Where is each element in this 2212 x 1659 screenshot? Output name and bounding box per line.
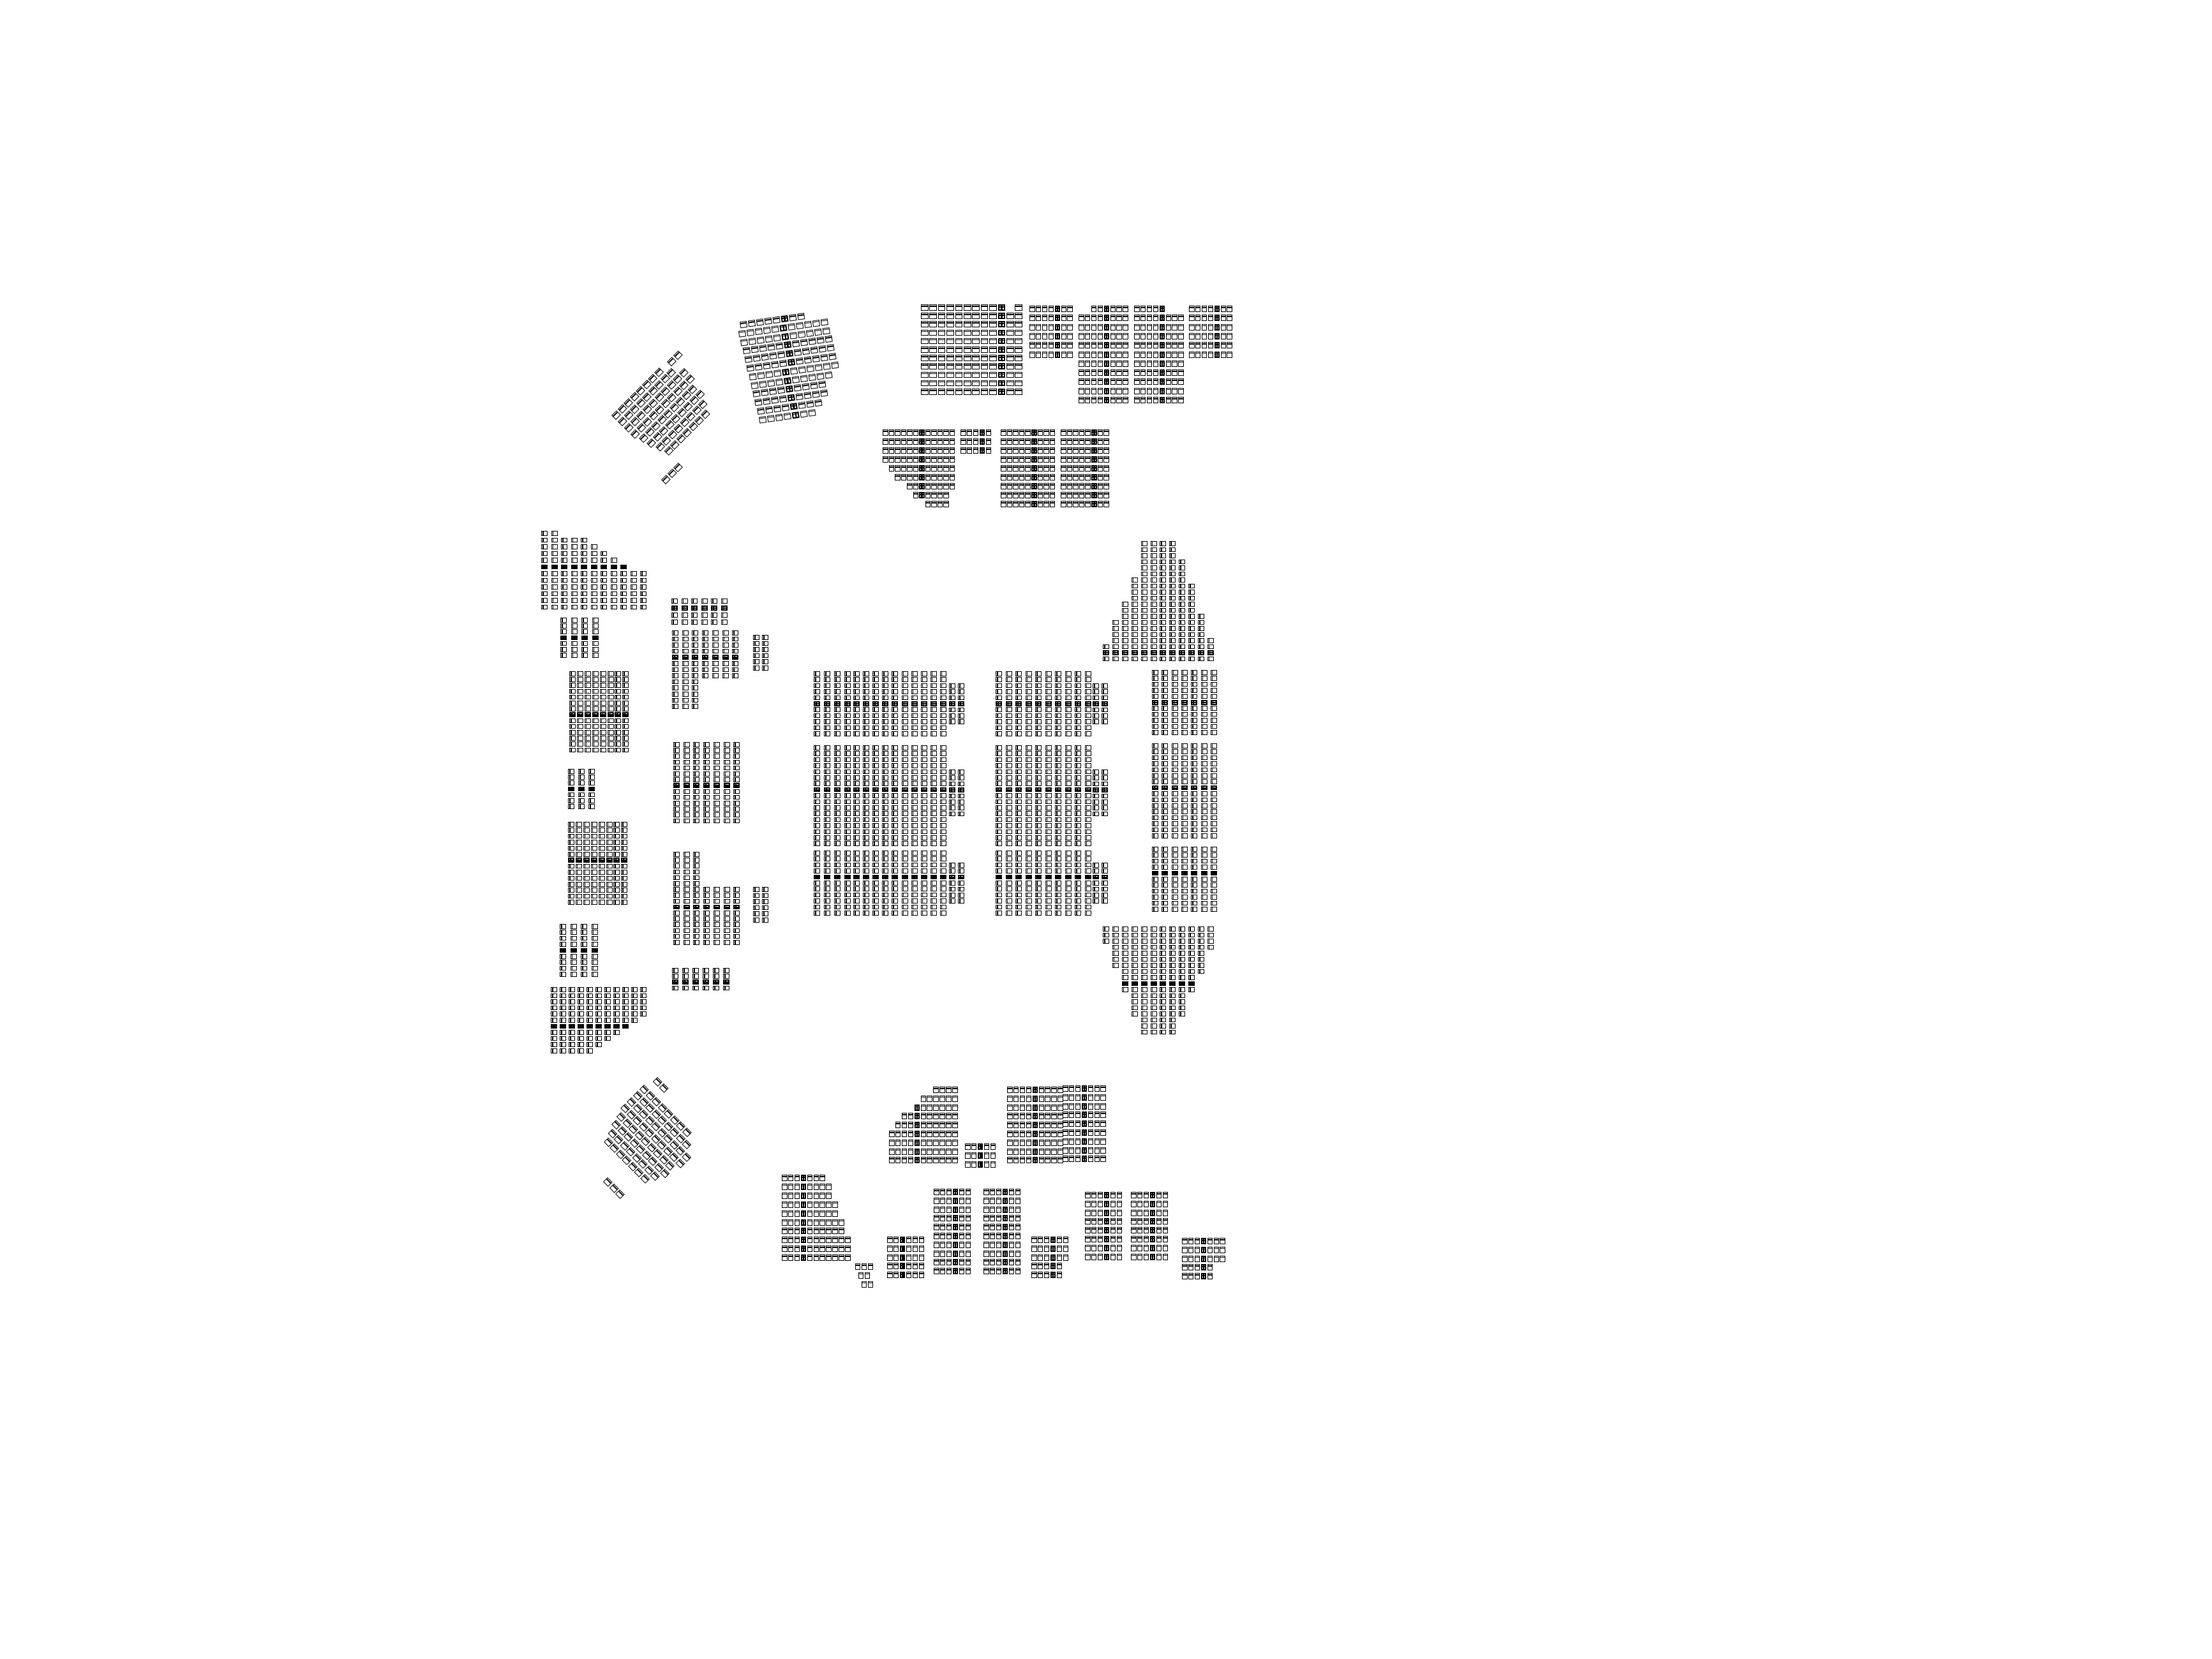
seat[interactable] bbox=[1221, 352, 1227, 358]
seat[interactable] bbox=[824, 886, 830, 891]
seat[interactable] bbox=[762, 635, 768, 640]
seat[interactable] bbox=[714, 789, 720, 794]
seat[interactable] bbox=[958, 683, 964, 688]
seat[interactable] bbox=[1162, 871, 1168, 876]
seat[interactable] bbox=[834, 793, 841, 798]
seat[interactable] bbox=[865, 1272, 871, 1279]
seat[interactable] bbox=[958, 898, 964, 904]
seat[interactable] bbox=[1131, 1210, 1137, 1216]
seat[interactable] bbox=[1116, 315, 1122, 321]
seat[interactable] bbox=[913, 456, 919, 463]
seat[interactable] bbox=[996, 817, 1002, 822]
seat[interactable] bbox=[1169, 584, 1176, 589]
seat[interactable] bbox=[781, 404, 789, 411]
seat[interactable] bbox=[740, 321, 747, 328]
seat[interactable] bbox=[1191, 773, 1197, 778]
seat[interactable] bbox=[1013, 1096, 1019, 1102]
seat[interactable] bbox=[940, 1251, 946, 1257]
seat[interactable] bbox=[795, 1219, 800, 1226]
seat[interactable] bbox=[693, 911, 699, 916]
seat[interactable] bbox=[1035, 817, 1042, 822]
seat[interactable] bbox=[913, 465, 919, 472]
seat[interactable] bbox=[853, 751, 860, 756]
seat[interactable] bbox=[1141, 584, 1147, 589]
seat[interactable] bbox=[863, 823, 869, 828]
seat[interactable] bbox=[1162, 682, 1168, 687]
seat[interactable] bbox=[541, 578, 548, 583]
seat[interactable] bbox=[1042, 342, 1048, 348]
seat[interactable] bbox=[844, 835, 851, 840]
seat[interactable] bbox=[1051, 1122, 1057, 1128]
seat[interactable] bbox=[1100, 1094, 1106, 1101]
seat[interactable] bbox=[1026, 719, 1032, 724]
seat[interactable] bbox=[1169, 614, 1176, 619]
seat[interactable] bbox=[1153, 361, 1159, 367]
seat[interactable] bbox=[1085, 324, 1091, 331]
seat[interactable] bbox=[753, 918, 759, 923]
seat[interactable] bbox=[990, 1189, 996, 1195]
seat[interactable] bbox=[1098, 1245, 1103, 1251]
seat[interactable] bbox=[1007, 1149, 1013, 1155]
seat[interactable] bbox=[1067, 342, 1073, 348]
seat[interactable] bbox=[1061, 492, 1066, 498]
seat[interactable] bbox=[577, 741, 583, 747]
seat[interactable] bbox=[1162, 859, 1168, 864]
seat[interactable] bbox=[622, 695, 629, 700]
seat[interactable] bbox=[1181, 718, 1188, 723]
seat[interactable] bbox=[1198, 650, 1204, 655]
seat[interactable] bbox=[591, 852, 597, 857]
seat[interactable] bbox=[1085, 1236, 1091, 1242]
seat[interactable] bbox=[819, 1246, 825, 1252]
seat[interactable] bbox=[608, 689, 614, 694]
seat[interactable] bbox=[1117, 1192, 1123, 1198]
seat[interactable] bbox=[1162, 755, 1168, 761]
seat[interactable] bbox=[1006, 330, 1014, 336]
seat[interactable] bbox=[576, 858, 582, 863]
seat[interactable] bbox=[1179, 602, 1185, 607]
seat[interactable] bbox=[810, 382, 818, 389]
seat[interactable] bbox=[732, 655, 738, 660]
seat[interactable] bbox=[902, 1140, 908, 1146]
seat[interactable] bbox=[1181, 798, 1188, 803]
seat[interactable] bbox=[925, 447, 931, 454]
seat[interactable] bbox=[958, 887, 964, 892]
seat[interactable] bbox=[1137, 1245, 1143, 1251]
seat[interactable] bbox=[819, 1184, 825, 1190]
seat[interactable] bbox=[767, 344, 775, 351]
seat[interactable] bbox=[1134, 342, 1140, 348]
seat[interactable] bbox=[981, 389, 989, 395]
seat[interactable] bbox=[1073, 492, 1079, 498]
seat[interactable] bbox=[1163, 1245, 1169, 1251]
seat[interactable] bbox=[1104, 388, 1110, 394]
seat[interactable] bbox=[919, 1254, 925, 1261]
seat[interactable] bbox=[569, 1024, 575, 1029]
seat[interactable] bbox=[1169, 981, 1176, 986]
seat[interactable] bbox=[1214, 306, 1220, 312]
seat[interactable] bbox=[1132, 650, 1138, 655]
seat[interactable] bbox=[1141, 999, 1147, 1004]
seat[interactable] bbox=[940, 800, 946, 805]
seat[interactable] bbox=[863, 811, 869, 816]
seat[interactable] bbox=[958, 775, 964, 780]
seat[interactable] bbox=[1201, 768, 1207, 773]
seat[interactable] bbox=[1151, 572, 1157, 577]
seat[interactable] bbox=[1013, 1113, 1019, 1119]
seat[interactable] bbox=[882, 851, 888, 856]
seat[interactable] bbox=[1029, 306, 1035, 312]
seat[interactable] bbox=[592, 966, 598, 971]
seat[interactable] bbox=[853, 793, 860, 798]
seat[interactable] bbox=[1162, 712, 1168, 717]
seat[interactable] bbox=[724, 812, 730, 817]
seat[interactable] bbox=[946, 1122, 952, 1128]
seat[interactable] bbox=[621, 840, 627, 845]
seat[interactable] bbox=[1134, 397, 1140, 403]
seat[interactable] bbox=[621, 894, 627, 899]
seat[interactable] bbox=[1179, 926, 1185, 932]
seat[interactable] bbox=[1181, 743, 1188, 748]
seat[interactable] bbox=[949, 898, 955, 904]
seat[interactable] bbox=[684, 899, 690, 904]
seat[interactable] bbox=[1088, 1156, 1094, 1162]
seat[interactable] bbox=[921, 731, 927, 736]
seat[interactable] bbox=[1095, 1094, 1100, 1101]
seat[interactable] bbox=[921, 1122, 927, 1128]
seat[interactable] bbox=[1181, 901, 1188, 906]
seat[interactable] bbox=[1015, 863, 1022, 868]
seat[interactable] bbox=[1172, 342, 1177, 348]
seat[interactable] bbox=[925, 438, 931, 445]
seat[interactable] bbox=[671, 606, 678, 611]
seat[interactable] bbox=[1103, 447, 1109, 454]
seat[interactable] bbox=[1075, 851, 1081, 856]
seat[interactable] bbox=[560, 1024, 566, 1029]
seat[interactable] bbox=[1055, 800, 1061, 805]
seat[interactable] bbox=[693, 922, 699, 927]
seat[interactable] bbox=[1067, 474, 1073, 480]
seat[interactable] bbox=[1151, 632, 1157, 637]
seat[interactable] bbox=[1160, 626, 1166, 631]
seat[interactable] bbox=[592, 972, 598, 977]
seat[interactable] bbox=[1026, 751, 1032, 756]
seat[interactable] bbox=[812, 320, 820, 327]
seat[interactable] bbox=[934, 1242, 939, 1248]
seat[interactable] bbox=[902, 800, 908, 805]
seat[interactable] bbox=[606, 894, 613, 899]
seat[interactable] bbox=[892, 787, 898, 792]
seat[interactable] bbox=[1075, 725, 1081, 731]
seat[interactable] bbox=[659, 1083, 668, 1093]
seat[interactable] bbox=[1162, 700, 1168, 705]
seat[interactable] bbox=[703, 807, 710, 812]
seat[interactable] bbox=[631, 591, 637, 597]
seat[interactable] bbox=[921, 875, 927, 880]
seat[interactable] bbox=[583, 900, 590, 905]
seat[interactable] bbox=[1095, 1112, 1100, 1118]
seat[interactable] bbox=[907, 483, 913, 489]
seat[interactable] bbox=[569, 987, 575, 992]
seat[interactable] bbox=[684, 858, 690, 863]
seat[interactable] bbox=[872, 829, 879, 835]
seat[interactable] bbox=[1043, 447, 1049, 454]
seat[interactable] bbox=[1091, 501, 1097, 507]
seat[interactable] bbox=[930, 696, 937, 701]
seat[interactable] bbox=[1172, 895, 1178, 900]
seat[interactable] bbox=[853, 781, 860, 786]
seat[interactable] bbox=[724, 795, 730, 800]
seat[interactable] bbox=[1122, 602, 1128, 607]
seat[interactable] bbox=[863, 751, 869, 756]
seat[interactable] bbox=[1166, 388, 1172, 394]
seat[interactable] bbox=[1065, 751, 1072, 756]
seat[interactable] bbox=[591, 840, 597, 845]
seat[interactable] bbox=[1181, 773, 1188, 778]
seat[interactable] bbox=[692, 649, 698, 654]
seat[interactable] bbox=[1102, 683, 1108, 688]
seat[interactable] bbox=[1110, 324, 1116, 331]
seat[interactable] bbox=[853, 805, 860, 810]
seat[interactable] bbox=[814, 893, 820, 898]
seat[interactable] bbox=[571, 558, 578, 563]
seat[interactable] bbox=[595, 1006, 602, 1011]
seat[interactable] bbox=[1112, 620, 1119, 625]
seat[interactable] bbox=[592, 724, 599, 729]
seat[interactable] bbox=[587, 1042, 593, 1047]
seat[interactable] bbox=[853, 898, 860, 904]
seat[interactable] bbox=[1065, 707, 1072, 712]
seat[interactable] bbox=[1015, 905, 1022, 910]
seat[interactable] bbox=[1065, 731, 1072, 736]
seat[interactable] bbox=[949, 881, 955, 886]
seat[interactable] bbox=[1006, 800, 1012, 805]
seat[interactable] bbox=[583, 846, 590, 851]
seat[interactable] bbox=[1198, 939, 1204, 944]
seat[interactable] bbox=[930, 763, 937, 768]
seat[interactable] bbox=[571, 924, 577, 929]
seat[interactable] bbox=[1067, 306, 1073, 312]
seat[interactable] bbox=[940, 829, 946, 835]
seat[interactable] bbox=[583, 858, 590, 863]
seat[interactable] bbox=[1152, 743, 1158, 748]
seat[interactable] bbox=[872, 868, 879, 874]
seat[interactable] bbox=[834, 893, 841, 898]
seat[interactable] bbox=[1026, 1140, 1032, 1146]
seat[interactable] bbox=[1169, 620, 1176, 625]
seat[interactable] bbox=[568, 888, 574, 893]
seat[interactable] bbox=[872, 683, 879, 688]
seat[interactable] bbox=[1038, 1272, 1043, 1278]
seat[interactable] bbox=[1075, 719, 1081, 724]
seat[interactable] bbox=[1207, 926, 1214, 932]
seat[interactable] bbox=[620, 598, 627, 603]
seat[interactable] bbox=[622, 993, 629, 999]
seat[interactable] bbox=[959, 1198, 965, 1204]
seat[interactable] bbox=[591, 822, 597, 827]
seat[interactable] bbox=[1162, 724, 1168, 729]
seat[interactable] bbox=[1085, 397, 1091, 403]
seat[interactable] bbox=[1214, 342, 1220, 348]
seat[interactable] bbox=[911, 893, 918, 898]
seat[interactable] bbox=[611, 578, 617, 583]
seat[interactable] bbox=[981, 380, 989, 387]
seat[interactable] bbox=[1051, 1140, 1057, 1146]
seat[interactable] bbox=[1181, 749, 1188, 754]
seat[interactable] bbox=[990, 1161, 996, 1168]
seat[interactable] bbox=[892, 823, 898, 828]
seat[interactable] bbox=[765, 335, 773, 342]
seat[interactable] bbox=[882, 775, 888, 780]
seat[interactable] bbox=[1006, 355, 1014, 361]
seat[interactable] bbox=[996, 731, 1002, 736]
seat[interactable] bbox=[541, 558, 548, 563]
seat[interactable] bbox=[1162, 907, 1168, 912]
seat[interactable] bbox=[938, 346, 946, 353]
seat[interactable] bbox=[762, 641, 768, 646]
seat[interactable] bbox=[600, 718, 606, 724]
seat[interactable] bbox=[853, 701, 860, 706]
seat[interactable] bbox=[1112, 626, 1119, 631]
seat[interactable] bbox=[1153, 315, 1159, 321]
seat[interactable] bbox=[693, 893, 699, 898]
seat[interactable] bbox=[1015, 689, 1022, 694]
seat[interactable] bbox=[834, 757, 841, 763]
seat[interactable] bbox=[1132, 963, 1138, 968]
seat[interactable] bbox=[931, 492, 937, 498]
seat[interactable] bbox=[1075, 1129, 1081, 1136]
seat[interactable] bbox=[1141, 993, 1147, 999]
seat[interactable] bbox=[940, 1268, 946, 1274]
seat[interactable] bbox=[1132, 584, 1138, 589]
seat[interactable] bbox=[921, 719, 927, 724]
seat[interactable] bbox=[953, 1259, 959, 1265]
seat[interactable] bbox=[1132, 969, 1138, 974]
seat[interactable] bbox=[946, 380, 954, 387]
seat[interactable] bbox=[939, 1096, 945, 1102]
seat[interactable] bbox=[996, 856, 1002, 861]
seat[interactable] bbox=[983, 1259, 989, 1265]
seat[interactable] bbox=[844, 775, 851, 780]
seat[interactable] bbox=[1045, 689, 1052, 694]
seat[interactable] bbox=[592, 924, 598, 929]
seat[interactable] bbox=[569, 712, 576, 717]
seat[interactable] bbox=[560, 948, 566, 953]
seat[interactable] bbox=[1110, 1245, 1116, 1251]
seat[interactable] bbox=[606, 870, 613, 875]
seat[interactable] bbox=[814, 1184, 819, 1190]
seat[interactable] bbox=[940, 905, 946, 910]
seat[interactable] bbox=[826, 1237, 832, 1243]
seat[interactable] bbox=[1079, 456, 1085, 463]
seat[interactable] bbox=[1015, 1268, 1021, 1274]
seat[interactable] bbox=[747, 364, 754, 371]
seat[interactable] bbox=[1104, 397, 1110, 403]
seat[interactable] bbox=[1169, 957, 1176, 962]
seat[interactable] bbox=[1131, 1236, 1137, 1242]
seat[interactable] bbox=[693, 777, 699, 782]
seat[interactable] bbox=[1132, 957, 1138, 962]
seat[interactable] bbox=[1091, 1236, 1097, 1242]
seat[interactable] bbox=[946, 355, 954, 361]
seat[interactable] bbox=[844, 893, 851, 898]
seat[interactable] bbox=[1188, 650, 1195, 655]
seat[interactable] bbox=[1006, 363, 1014, 369]
seat[interactable] bbox=[844, 677, 851, 682]
seat[interactable] bbox=[784, 377, 791, 384]
seat[interactable] bbox=[604, 1006, 611, 1011]
seat[interactable] bbox=[1172, 761, 1178, 766]
seat[interactable] bbox=[1179, 951, 1185, 956]
seat[interactable] bbox=[938, 338, 946, 345]
seat[interactable] bbox=[1122, 939, 1128, 944]
seat[interactable] bbox=[902, 707, 908, 712]
seat[interactable] bbox=[621, 852, 627, 857]
seat[interactable] bbox=[863, 881, 869, 886]
seat[interactable] bbox=[1009, 1207, 1015, 1213]
seat[interactable] bbox=[1150, 1201, 1156, 1207]
seat[interactable] bbox=[1026, 763, 1032, 768]
seat[interactable] bbox=[673, 916, 680, 921]
seat[interactable] bbox=[931, 447, 937, 454]
seat[interactable] bbox=[551, 578, 558, 583]
seat[interactable] bbox=[1091, 352, 1097, 358]
seat[interactable] bbox=[1075, 805, 1081, 810]
seat[interactable] bbox=[1098, 1192, 1103, 1198]
seat[interactable] bbox=[872, 677, 879, 682]
seat[interactable] bbox=[919, 456, 925, 463]
seat[interactable] bbox=[1065, 893, 1072, 898]
seat[interactable] bbox=[568, 858, 574, 863]
seat[interactable] bbox=[955, 304, 963, 311]
seat[interactable] bbox=[1163, 1201, 1169, 1207]
seat[interactable] bbox=[684, 852, 690, 857]
seat[interactable] bbox=[1201, 798, 1207, 803]
seat[interactable] bbox=[872, 800, 879, 805]
seat[interactable] bbox=[551, 605, 558, 610]
seat[interactable] bbox=[1123, 369, 1128, 376]
seat[interactable] bbox=[1091, 1245, 1097, 1251]
seat[interactable] bbox=[1093, 863, 1099, 868]
seat[interactable] bbox=[569, 718, 576, 724]
seat[interactable] bbox=[1006, 689, 1012, 694]
seat[interactable] bbox=[1013, 456, 1019, 463]
seat[interactable] bbox=[949, 696, 955, 701]
seat[interactable] bbox=[1026, 793, 1032, 798]
seat[interactable] bbox=[1085, 683, 1091, 688]
seat[interactable] bbox=[1189, 342, 1195, 348]
seat[interactable] bbox=[569, 689, 576, 694]
seat[interactable] bbox=[925, 465, 931, 472]
seat[interactable] bbox=[1006, 763, 1012, 768]
seat[interactable] bbox=[1085, 361, 1091, 367]
seat[interactable] bbox=[1160, 1006, 1166, 1011]
seat[interactable] bbox=[1102, 898, 1108, 904]
seat[interactable] bbox=[672, 673, 678, 678]
seat[interactable] bbox=[863, 886, 869, 891]
seat[interactable] bbox=[592, 629, 599, 634]
seat[interactable] bbox=[724, 801, 730, 806]
seat[interactable] bbox=[615, 706, 621, 711]
seat[interactable] bbox=[887, 1272, 893, 1278]
seat[interactable] bbox=[606, 840, 613, 845]
seat[interactable] bbox=[1162, 865, 1168, 870]
seat[interactable] bbox=[1179, 620, 1185, 625]
seat[interactable] bbox=[1195, 1256, 1200, 1262]
seat[interactable] bbox=[967, 447, 973, 454]
seat[interactable] bbox=[733, 887, 740, 892]
seat[interactable] bbox=[853, 856, 860, 861]
